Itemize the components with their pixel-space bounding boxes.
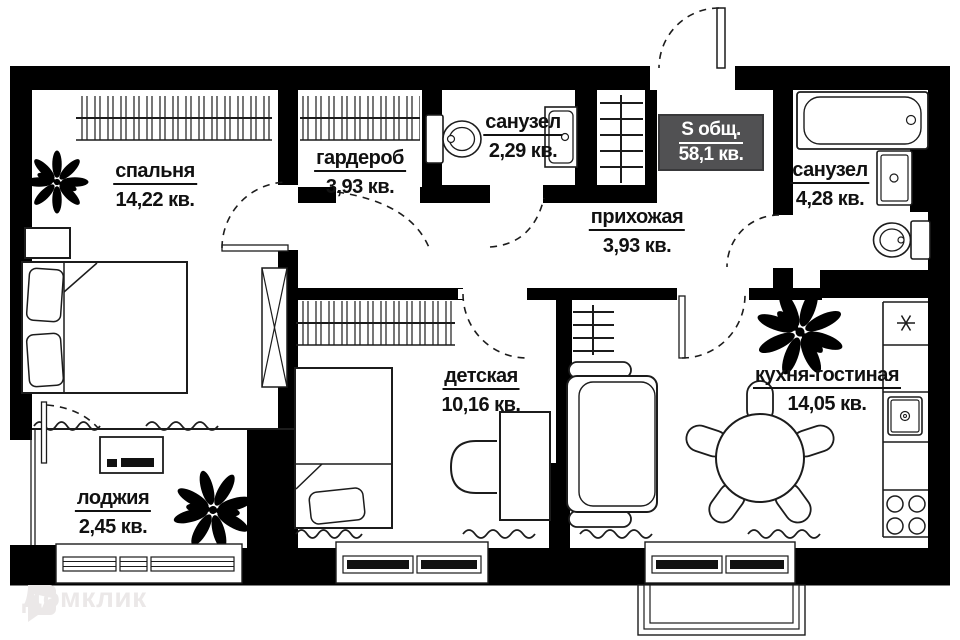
stove-icon <box>887 496 925 534</box>
room-name: санузел <box>790 159 869 184</box>
wardrobe-closet-rack-icon <box>300 96 420 140</box>
bathroom-door-icon <box>727 215 779 267</box>
radiator-icon <box>463 530 535 538</box>
kids-window-icon <box>336 542 488 583</box>
washbasin-icon <box>877 151 912 205</box>
mirror-wardrobe-icon <box>262 268 287 387</box>
room-area: 4,28 кв. <box>790 188 869 210</box>
entrance-door-icon <box>659 8 725 68</box>
chair-icon <box>451 441 497 493</box>
radiator-icon <box>748 530 820 538</box>
floorplan-drawing <box>0 0 960 640</box>
bathroom-small-door-icon <box>490 198 544 247</box>
room-label-bathroom-small: санузел 2,29 кв. <box>483 111 562 162</box>
watermark: Домклик <box>22 582 147 614</box>
bench-icon <box>100 437 163 473</box>
nightstand-icon <box>25 228 70 258</box>
loggia-window-icon <box>56 544 242 583</box>
room-label-loggia: лоджия 2,45 кв. <box>75 487 151 538</box>
room-area: 10,16 кв. <box>442 394 521 416</box>
sofa-icon <box>567 362 657 527</box>
kitchen-duct-ladder-icon <box>573 305 614 355</box>
kitchen-counter-icon <box>883 302 928 537</box>
room-area: 3,93 кв. <box>589 235 685 257</box>
total-area-value: 58,1 кв. <box>679 144 744 166</box>
floorplan-page: спальня 14,22 кв. гардероб 3,93 кв. сану… <box>0 0 960 640</box>
plant-icon <box>26 151 89 214</box>
total-area-badge: S общ. 58,1 кв. <box>658 114 764 171</box>
balcony-door-icon <box>42 402 99 463</box>
domclick-logo-icon <box>22 582 60 622</box>
room-label-wardrobe: гардероб 3,93 кв. <box>314 147 406 198</box>
radiator-icon <box>580 530 652 538</box>
room-area: 14,05 кв. <box>753 393 901 415</box>
double-bed-icon <box>22 262 187 393</box>
room-name: спальня <box>113 160 197 185</box>
toilet-icon <box>426 115 481 163</box>
kids-closet-rack-icon <box>296 301 455 345</box>
room-label-hallway: прихожая 3,93 кв. <box>589 206 685 257</box>
bedroom-closet-rack-icon <box>76 96 272 140</box>
duct-ladder-icon <box>600 95 643 183</box>
kitchen-door-icon <box>679 295 745 358</box>
single-bed-icon <box>295 368 392 528</box>
room-label-bathroom: санузел 4,28 кв. <box>790 159 869 210</box>
vent-asterisk-icon <box>897 316 915 331</box>
room-label-bedroom: спальня 14,22 кв. <box>113 160 197 211</box>
room-name: детская <box>442 365 520 390</box>
french-balcony-icon <box>638 585 805 635</box>
room-area: 14,22 кв. <box>113 189 197 211</box>
wardrobe-door-icon <box>337 192 430 250</box>
kitchen-window-icon <box>645 542 795 583</box>
bathtub-icon <box>797 92 928 149</box>
room-name: гардероб <box>314 147 406 172</box>
desk-icon <box>500 412 550 520</box>
room-name: санузел <box>483 111 562 136</box>
room-name: прихожая <box>589 206 685 231</box>
room-label-kids-room: детская 10,16 кв. <box>442 365 521 416</box>
toilet-icon <box>874 221 931 259</box>
room-label-kitchen-living: кухня-гостиная 14,05 кв. <box>753 364 901 415</box>
kids-door-icon <box>463 294 527 358</box>
room-name: кухня-гостиная <box>753 364 901 389</box>
room-area: 2,45 кв. <box>75 516 151 538</box>
room-area: 3,93 кв. <box>314 176 406 198</box>
room-name: лоджия <box>75 487 151 512</box>
bedroom-door-icon <box>222 182 288 251</box>
room-area: 2,29 кв. <box>483 140 562 162</box>
total-area-label: S общ. <box>679 119 743 144</box>
radiator-icon <box>296 530 362 538</box>
